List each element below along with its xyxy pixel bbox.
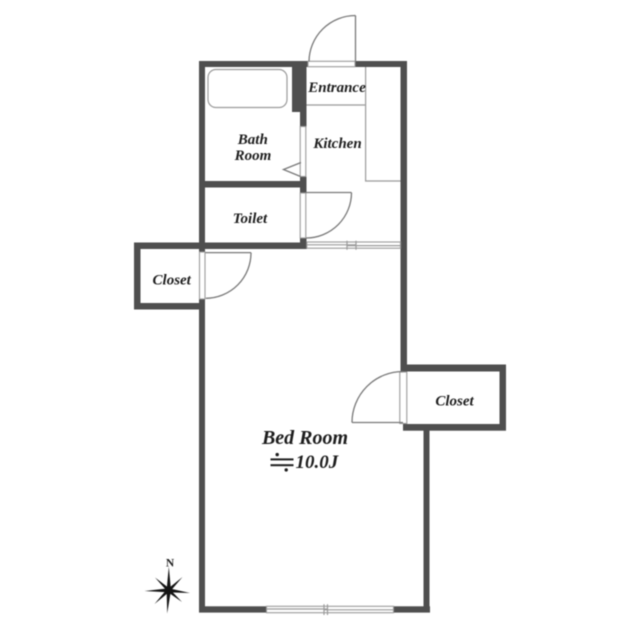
svg-text:Kitchen: Kitchen [312,136,361,152]
svg-text:Toilet: Toilet [233,211,268,227]
svg-text:Entrance: Entrance [307,80,366,96]
svg-text:Bath: Bath [237,132,268,148]
svg-text:Closet: Closet [153,273,192,289]
svg-text:10.0J: 10.0J [296,452,339,473]
svg-text:Closet: Closet [435,394,474,410]
svg-text:Room: Room [234,148,272,164]
svg-text:N: N [166,558,175,570]
svg-text:Bed Room: Bed Room [261,427,348,449]
